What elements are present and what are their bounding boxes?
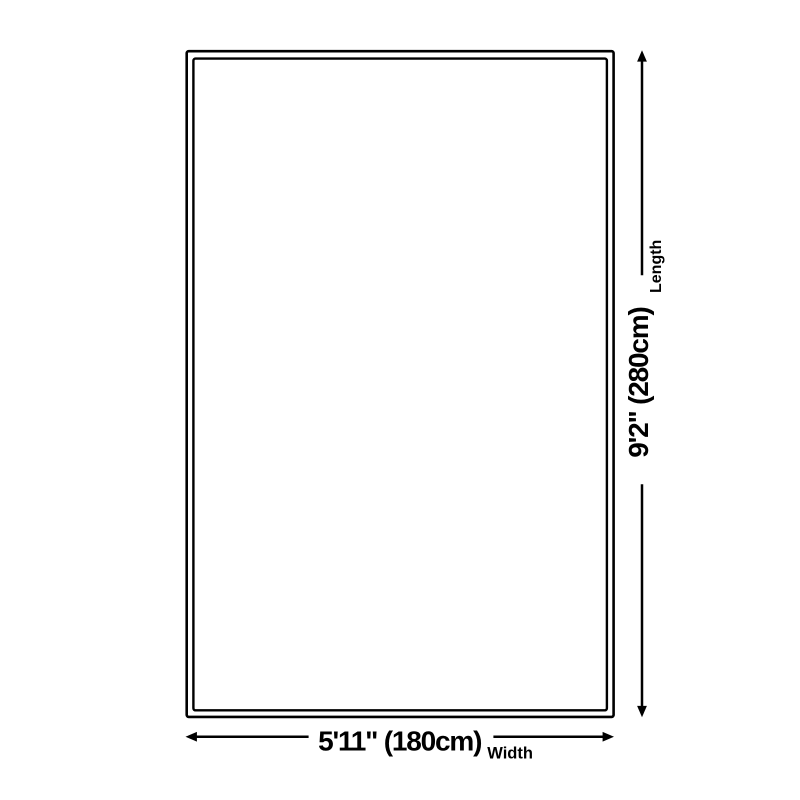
svg-text:Width: Width (487, 745, 533, 763)
svg-text:9'2" (280cm): 9'2" (280cm) (623, 307, 654, 457)
svg-text:Length: Length (648, 240, 665, 293)
svg-text:5'11" (180cm): 5'11" (180cm) (318, 725, 481, 756)
